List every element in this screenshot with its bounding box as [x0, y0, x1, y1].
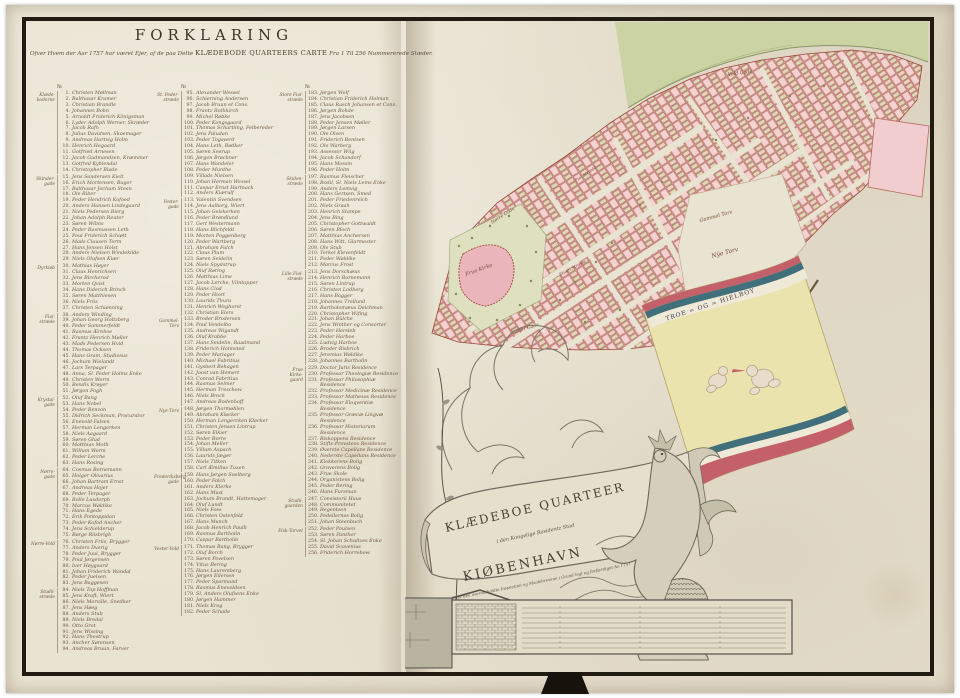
street-group-label: Vester-Vold [154, 545, 181, 616]
legend-entry: 182.Peder Schade [184, 610, 276, 616]
legend-entry: 94.Andreas Bruun, Farver [60, 647, 152, 653]
street-group: Krystal-gade52.Oluf Bang53.Hans Nobel54.… [30, 396, 152, 467]
subtitle-caps: KLÆDEBODE QUARTEERS CARTE [195, 49, 327, 57]
legend-entry: 256.Friderich Horrebow [308, 551, 400, 557]
street-group-label: Nørre-gade [30, 468, 57, 539]
legend-entry: 228.Johannes Bartholin [308, 359, 400, 365]
street-group-label: Frue Kirke-gaard [278, 366, 305, 496]
street-group-label: Gammel-Torv [154, 317, 181, 406]
street-group-label: Lille Fiol-stræde [278, 270, 305, 365]
street-group-label: Vester-gade [154, 198, 181, 316]
street-group: Dyrkiøb30.Mathias Høyer31.Claus Henrichs… [30, 264, 152, 311]
street-group-label: Skinder-gade [30, 175, 57, 264]
street-group: Skinder-gade15.Jens Sandersen Kielt16.Er… [30, 175, 152, 264]
street-group-label: Dyrkiøb [30, 264, 57, 311]
quarter-map: Vold Gade Nørre Gade Fiol Stræde Studii … [405, 17, 933, 676]
street-group: Vester-Vold171.Thomas Bang, Brygger172.O… [154, 545, 276, 616]
street-group: Studii-stræde84.Niels Top Hoffman85.Jens… [30, 588, 152, 653]
street-group-label: Nye-Torv [154, 407, 181, 472]
street-group: Lille Fiol-stræde213.Jens Dorschæus214.H… [278, 270, 400, 365]
street-group: Nørre-Vold76.Christen Friis, Brygger77.A… [30, 540, 152, 587]
street-group-label: Nørre-Vold [30, 540, 57, 587]
street-group: Store Fiol-stræde183.Jørgen Wolf184.Chri… [278, 91, 400, 174]
street-group: Skiden-stræde197.Rasmus Fleischer198.Bod… [278, 175, 400, 270]
legend-entry: 246.Hans Fursman [308, 490, 400, 496]
street-group: Frederiksberg-gade159.Hans Jørgen Soelbe… [154, 473, 276, 544]
street-group-label: Fisk-Torvet [278, 527, 305, 557]
legend-entry: 236.Professor Historiarum Residence [308, 425, 400, 437]
street-group-label: Store Fiol-stræde [278, 91, 305, 174]
street-group: St. Peder-stræde95.Alexander Wessel96.Sc… [154, 91, 276, 197]
street-group-label: Studii-stræde [30, 588, 57, 653]
legend-column-3: №Store Fiol-stræde183.Jørgen Wolf184.Chr… [278, 84, 400, 664]
page-title: FORKLARING [30, 26, 398, 44]
street-group-label: Fiol-stræde [30, 313, 57, 396]
street-group: Studii-gaarden247.Consistorii Huus248.Co… [278, 497, 400, 527]
street-group: Nye-Torv148.Jørgen Thormøhlen149.Abraham… [154, 407, 276, 472]
legend-entry: 14.Christopher Blade [60, 168, 152, 174]
legend-entry: 170.Caspar Bartholin [184, 538, 276, 544]
street-group-label: Studii-gaarden [278, 497, 305, 527]
street-group-label: St. Peder-stræde [154, 91, 181, 197]
street-group: Gammel-Torv133.Broder Brodersen134.Poul … [154, 317, 276, 406]
street-group: Vester-gade113.Valentin Svendsen114.Jens… [154, 198, 276, 316]
page-subtitle: Ofver Hvem der Aar 1757 har været Ejer, … [30, 49, 398, 57]
street-group: Klæde-boderne1.Christen Møllman2.Balthas… [30, 91, 152, 174]
street-group-label: Krystal-gade [30, 396, 57, 467]
street-group-label: Klæde-boderne [30, 91, 57, 174]
street-group-label: Frederiksberg-gade [154, 473, 181, 544]
stone-ledge [405, 590, 792, 668]
street-group: Fisk-Torvet252.Peder Poulsen253.Søren Pa… [278, 527, 400, 557]
street-group: Frue Kirke-gaard229.Doctor Juris Residen… [278, 366, 400, 496]
outer-block [868, 118, 929, 197]
street-group: Nørre-gade64.Cosmus Bornemann65.Holger O… [30, 468, 152, 539]
legend-entry: 196.Peder Holm [308, 168, 400, 174]
legend-entry: 235.Professor Græcæ Lingvæ Residence [308, 413, 400, 425]
legend-column-2: №St. Peder-stræde95.Alexander Wessel96.S… [154, 84, 276, 664]
street-group: Fiol-stræde38.Anders Winding39.Johan Geo… [30, 313, 152, 396]
legend-entry: 37.Christen Schiønning [60, 306, 152, 312]
street-group-label: Skiden-stræde [278, 175, 305, 270]
subtitle-script-1: Ofver Hvem der Aar 1757 har været Ejer, … [30, 51, 193, 57]
legend-header: FORKLARING Ofver Hvem der Aar 1757 har v… [30, 26, 398, 57]
legend-column-1: №Klæde-boderne1.Christen Møllman2.Baltha… [30, 84, 152, 664]
